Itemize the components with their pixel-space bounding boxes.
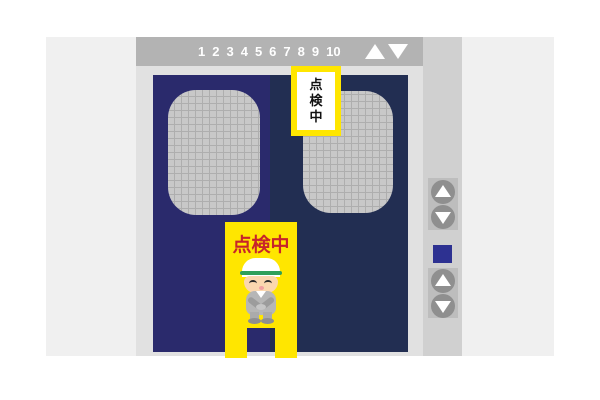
worker-nose bbox=[259, 286, 264, 290]
inspection-sign-label: 点 検 中 bbox=[297, 72, 335, 130]
sign-char: 中 bbox=[309, 109, 322, 125]
floor-number: 2 bbox=[212, 44, 219, 59]
floor-number: 4 bbox=[241, 44, 248, 59]
worker-shoe-left bbox=[248, 318, 261, 324]
elevator-illustration: 1 2 3 4 5 6 7 8 9 10 bbox=[0, 0, 600, 400]
blue-lamp-square bbox=[433, 245, 452, 263]
inspection-sign-on-door: 点 検 中 bbox=[291, 66, 341, 136]
worker-eye-right bbox=[264, 280, 272, 287]
floor-number: 7 bbox=[283, 44, 290, 59]
up-triangle-icon bbox=[435, 274, 451, 286]
floor-number: 9 bbox=[312, 44, 319, 59]
floor-number: 5 bbox=[255, 44, 262, 59]
sign-stand-leg-left bbox=[225, 328, 247, 358]
floor-number: 1 bbox=[198, 44, 205, 59]
worker-shoe-right bbox=[261, 318, 274, 324]
call-button-group-lower bbox=[428, 268, 458, 318]
up-triangle-icon bbox=[365, 44, 385, 59]
floor-numbers: 1 2 3 4 5 6 7 8 9 10 bbox=[198, 44, 341, 59]
worker-hands bbox=[256, 304, 266, 310]
inspection-sign-stand: 点検中 bbox=[225, 222, 297, 358]
up-triangle-icon bbox=[435, 185, 451, 197]
bowing-worker-figure bbox=[225, 222, 297, 328]
down-triangle-icon bbox=[435, 212, 451, 224]
door-window-left bbox=[168, 90, 260, 215]
floor-indicator-bar: 1 2 3 4 5 6 7 8 9 10 bbox=[136, 37, 423, 66]
down-triangle-icon bbox=[435, 301, 451, 313]
call-button-panel bbox=[423, 37, 462, 356]
call-up-button[interactable] bbox=[431, 269, 455, 293]
sign-char: 検 bbox=[309, 93, 322, 109]
call-button-group-upper bbox=[428, 178, 458, 230]
floor-number: 3 bbox=[226, 44, 233, 59]
down-triangle-icon bbox=[388, 44, 408, 59]
call-up-button[interactable] bbox=[431, 180, 455, 204]
sign-stand-leg-right bbox=[275, 328, 297, 358]
floor-number: 10 bbox=[326, 44, 340, 59]
worker-eye-left bbox=[249, 280, 257, 287]
worker-collar bbox=[256, 291, 266, 298]
floor-number: 6 bbox=[269, 44, 276, 59]
floor-number: 8 bbox=[298, 44, 305, 59]
call-down-button[interactable] bbox=[431, 205, 455, 229]
sign-char: 点 bbox=[309, 77, 322, 93]
call-down-button[interactable] bbox=[431, 294, 455, 318]
direction-indicators bbox=[365, 44, 408, 59]
